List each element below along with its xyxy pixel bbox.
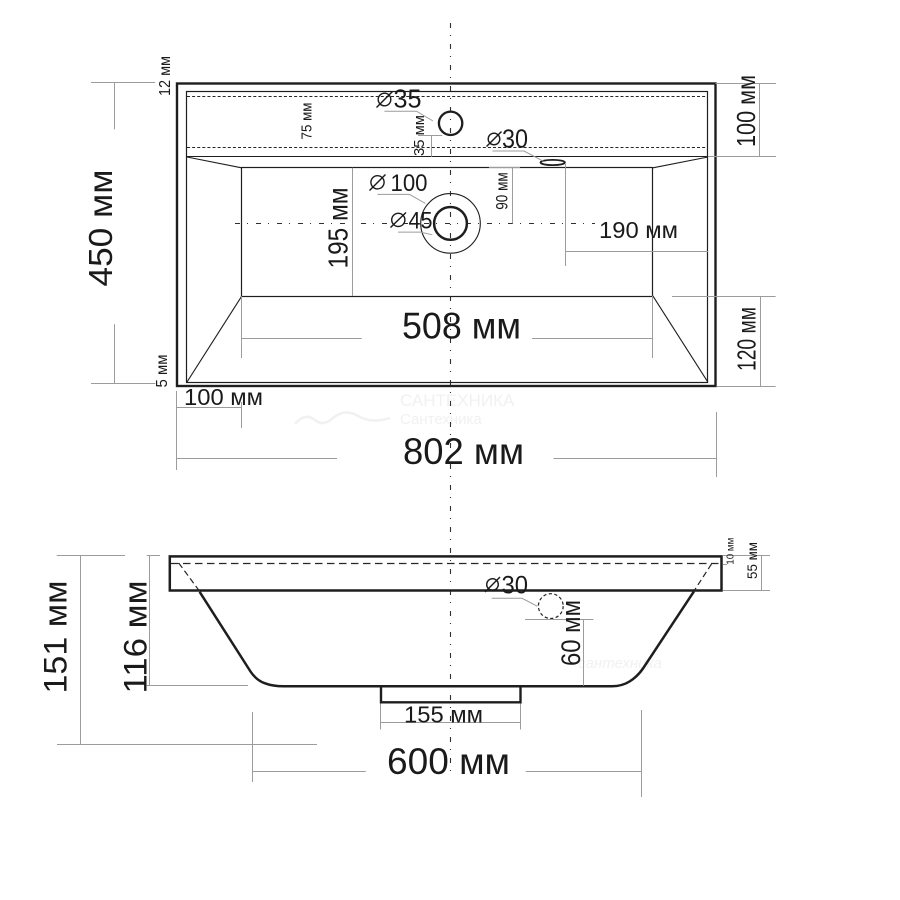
svg-text:195 мм: 195 мм (323, 188, 354, 269)
svg-text:45: 45 (409, 208, 433, 235)
svg-text:116 мм: 116 мм (118, 581, 154, 694)
svg-text:151 мм: 151 мм (38, 581, 74, 694)
svg-text:450 мм: 450 мм (82, 170, 119, 287)
svg-text:190 мм: 190 мм (599, 217, 678, 243)
svg-text:60 мм: 60 мм (556, 600, 586, 666)
svg-text:35: 35 (394, 84, 422, 114)
svg-text:508 мм: 508 мм (402, 306, 521, 347)
svg-text:Сантехника: Сантехника (400, 411, 482, 428)
svg-text:10 мм: 10 мм (725, 538, 737, 565)
svg-text:30: 30 (502, 571, 529, 599)
svg-text:100: 100 (391, 170, 428, 197)
svg-text:САНТЕХНИКА: САНТЕХНИКА (400, 391, 515, 410)
svg-text:90 мм: 90 мм (493, 172, 511, 210)
svg-text:100 мм: 100 мм (184, 384, 263, 410)
svg-text:120 мм: 120 мм (731, 307, 761, 371)
svg-text:5 мм: 5 мм (154, 355, 171, 388)
svg-text:600 мм: 600 мм (387, 741, 510, 782)
svg-text:30: 30 (502, 123, 528, 153)
svg-text:802 мм: 802 мм (403, 431, 524, 472)
svg-text:100 мм: 100 мм (731, 75, 761, 147)
svg-text:155 мм: 155 мм (404, 701, 483, 727)
svg-text:75 мм: 75 мм (298, 103, 315, 140)
svg-text:12 мм: 12 мм (157, 56, 174, 96)
svg-text:55 мм: 55 мм (744, 542, 760, 579)
